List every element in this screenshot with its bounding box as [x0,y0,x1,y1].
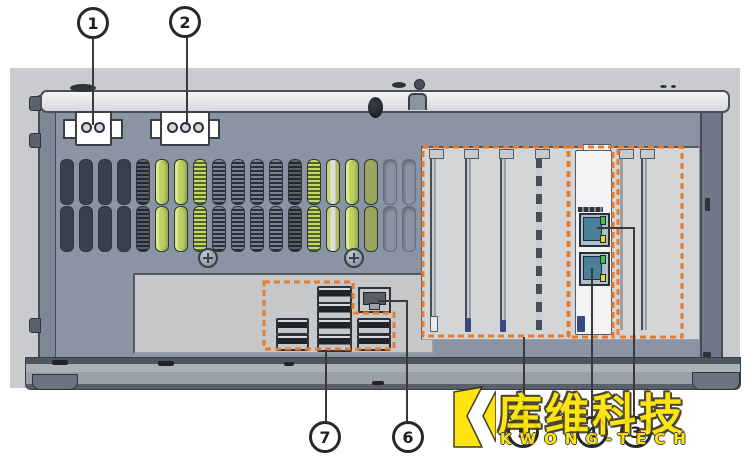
slot-area-outline-middle [568,147,613,337]
callout-7: 7 [309,421,341,453]
kwong-tech-logo-icon [452,386,496,448]
slot-area-outline-left [423,147,569,336]
rear-panel-diagram: 1 2 7 6 5 4 3 库维科技 KWONG-TECH [0,0,753,458]
callout-2-number: 2 [179,13,190,32]
leader-line-6 [378,301,407,421]
watermark-latin-text: KWONG-TECH [500,430,694,448]
callout-1: 1 [77,7,109,39]
callout-1-number: 1 [87,14,98,33]
callout-7-number: 7 [319,428,330,447]
callout-2: 2 [169,6,201,38]
slot-area-outline-right [618,147,682,337]
callout-6: 6 [392,421,424,453]
usb-group-outline [264,282,394,349]
watermark: 库维科技 KWONG-TECH [452,383,752,458]
callout-6-number: 6 [402,428,413,447]
